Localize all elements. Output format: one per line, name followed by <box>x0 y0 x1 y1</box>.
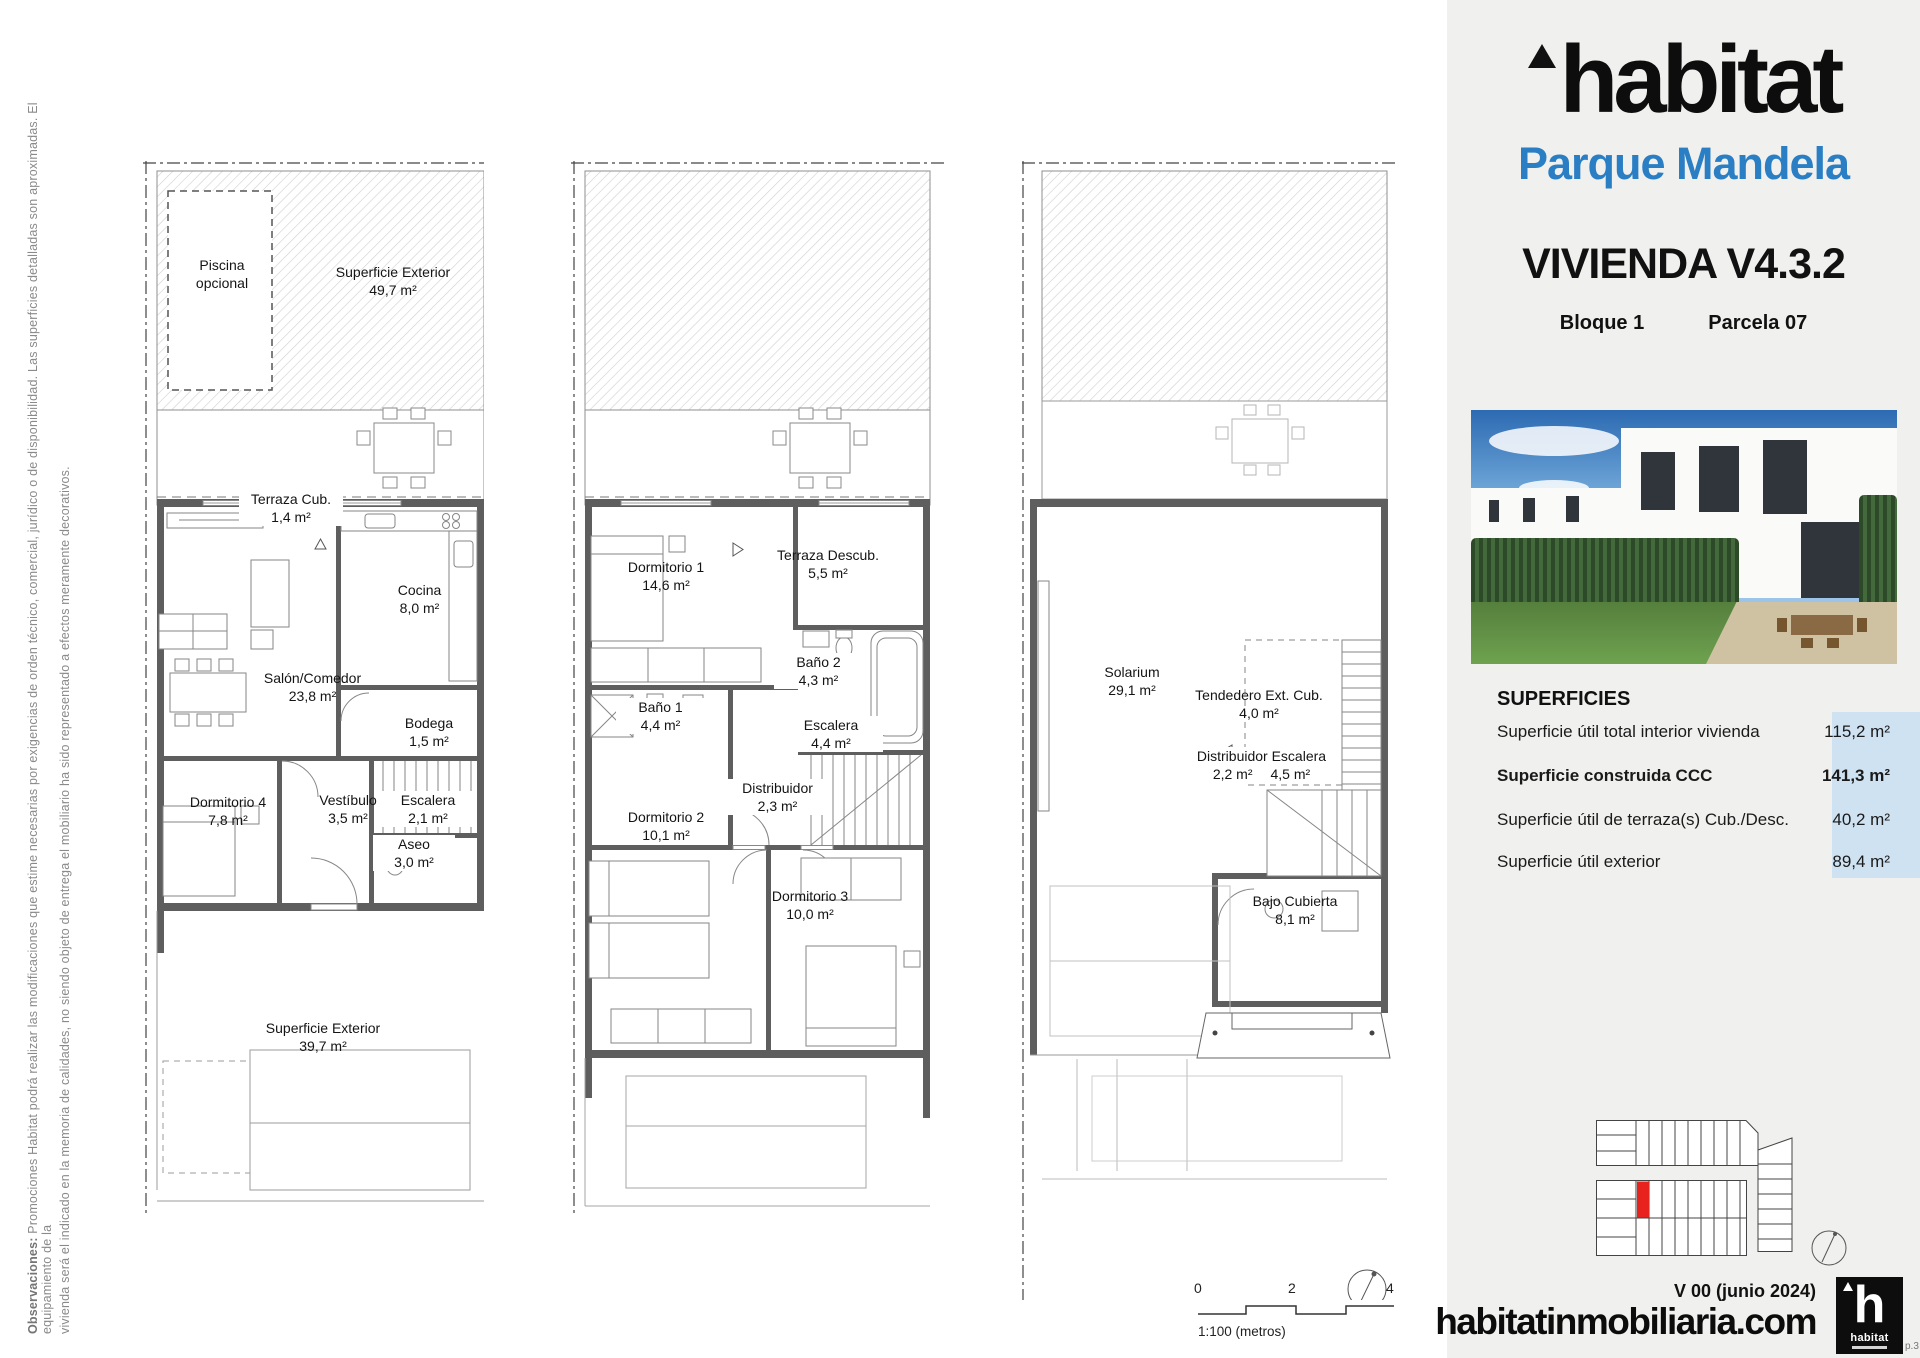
room-name: Terraza Descub. <box>763 546 893 564</box>
room-name: Bodega <box>385 714 473 732</box>
room-label-solarium: Solarium 29,1 m² <box>1077 663 1187 699</box>
room-name: Bajo Cubierta <box>1240 892 1350 910</box>
room-name: Dormitorio 2 <box>611 808 721 826</box>
superficie-label: Superficie útil exterior <box>1497 852 1660 872</box>
site-plan-minimap <box>1596 1120 1806 1260</box>
room-area: 8,1 m² <box>1240 910 1350 928</box>
room-label-escalera: Escalera 4,4 m² <box>779 716 883 752</box>
superficie-label: Superficie útil total interior vivienda <box>1497 722 1760 742</box>
disclaimer-text-1: Promociones Habitat podrá realizar las m… <box>26 102 54 1334</box>
room-label-dormitorio-4: Dormitorio 4 7,8 m² <box>168 793 288 829</box>
room-label-dormitorio-1: Dormitorio 1 14,6 m² <box>606 558 726 594</box>
room-area: 3,0 m² <box>375 853 453 871</box>
disclaimer-text-2: vivienda será el indicado en la memoria … <box>58 466 72 1334</box>
room-name: Superficie Exterior <box>313 263 473 281</box>
room-label-superficie-exterior-bottom: Superficie Exterior 39,7 m² <box>248 1019 398 1055</box>
scale-bar: 0 2 4 1:100 (metros) <box>1196 1280 1410 1350</box>
room-area: 23,8 m² <box>255 687 370 705</box>
room-label-salon-comedor: Salón/Comedor 23,8 m² <box>255 669 370 705</box>
room-label-bano-1: Baño 1 4,4 m² <box>616 698 705 734</box>
room-area: 5,5 m² <box>763 564 893 582</box>
room-area: 14,6 m² <box>606 576 726 594</box>
room-label-cocina: Cocina 8,0 m² <box>377 581 462 617</box>
room-name: Distribuidor Escalera <box>1184 747 1339 765</box>
superficies-row: Superficie útil exterior 89,4 m² <box>1497 852 1900 874</box>
room-area: 4,4 m² <box>781 734 881 752</box>
scale-tick-0: 0 <box>1194 1280 1202 1296</box>
superficies-row: Superficie útil de terraza(s) Cub./Desc.… <box>1497 810 1900 832</box>
room-area: 49,7 m² <box>313 281 473 299</box>
version-label: V 00 (junio 2024) <box>1674 1281 1816 1302</box>
room-label-bajo-cubierta: Bajo Cubierta 8,1 m² <box>1240 892 1350 928</box>
room-label-piscina: Piscina opcional <box>170 256 274 292</box>
photo-window <box>1641 452 1675 510</box>
habitat-logo: habitat <box>1447 34 1920 125</box>
photo-patio-chair <box>1827 638 1839 648</box>
room-name: Cocina <box>377 581 462 599</box>
room-label-bano-2: Baño 2 4,3 m² <box>774 653 863 689</box>
photo-window <box>1763 440 1807 514</box>
room-name: Terraza Cub. <box>241 490 341 508</box>
page-reference: p.3 <box>1905 1341 1919 1352</box>
logo-word: habitat <box>1836 1332 1903 1344</box>
scale-tick-4: 4 <box>1386 1280 1394 1296</box>
room-label-terraza-cub: Terraza Cub. 1,4 m² <box>239 490 343 526</box>
disclaimer-bold: Observaciones: <box>26 1237 40 1334</box>
unit-title: VIVIENDA V4.3.2 <box>1447 240 1920 289</box>
room-label-dormitorio-2: Dormitorio 2 10,1 m² <box>611 808 721 844</box>
superficie-value: 89,4 m² <box>1832 852 1890 872</box>
room-label-escalera: Escalera 2,1 m² <box>381 791 475 827</box>
photo-patio-chair <box>1777 618 1787 632</box>
disclaimer: Observaciones: Promociones Habitat podrá… <box>26 24 72 1334</box>
room-area: 10,1 m² <box>611 826 721 844</box>
photo-window <box>1566 496 1579 522</box>
floor-plan-ground: Piscina opcional Superficie Exterior 49,… <box>143 161 484 1217</box>
logo-underline <box>1852 1346 1887 1349</box>
scale-bar-drawing <box>1196 1298 1406 1320</box>
superficies-row: Superficie útil total interior vivienda … <box>1497 722 1900 744</box>
room-label-aseo: Aseo 3,0 m² <box>373 835 455 871</box>
superficie-value: 115,2 m² <box>1824 722 1890 742</box>
room-area: 1,4 m² <box>241 508 341 526</box>
photo-window <box>1699 446 1739 512</box>
room-label-terraza-descub: Terraza Descub. 5,5 m² <box>763 546 893 582</box>
habitat-footer-logo: h habitat <box>1836 1277 1903 1354</box>
room-name: Dormitorio 3 <box>754 887 866 905</box>
project-name: Parque Mandela <box>1447 138 1920 190</box>
room-area: 39,7 m² <box>248 1037 398 1055</box>
compass-icon <box>1807 1226 1851 1270</box>
room-name: Baño 1 <box>618 698 703 716</box>
room-area: 4,0 m² <box>1184 704 1334 722</box>
photo-patio-chair <box>1857 618 1867 632</box>
floor-plan-roof-drawing <box>1022 161 1397 1300</box>
brand-wordmark: habitat <box>1560 34 1840 125</box>
room-label-distribuidor: Distribuidor 2,3 m² <box>723 779 832 815</box>
habitat-triangle-icon <box>1528 44 1556 68</box>
room-area: 4,4 m² <box>618 716 703 734</box>
room-name: Piscina <box>170 256 274 274</box>
room-areas: 2,2 m² 4,5 m² <box>1184 765 1339 783</box>
highlighted-plot <box>1637 1182 1649 1218</box>
room-name: Superficie Exterior <box>248 1019 398 1037</box>
logo-letter: h <box>1836 1279 1903 1331</box>
website-link[interactable]: habitatinmobiliaria.com <box>1435 1301 1816 1343</box>
room-area: 1,5 m² <box>385 732 473 750</box>
photo-hedge <box>1471 538 1739 606</box>
room-area-2: 4,5 m² <box>1271 765 1311 783</box>
room-name: Aseo <box>375 835 453 853</box>
info-panel: habitat Parque Mandela VIVIENDA V4.3.2 B… <box>1447 0 1920 1358</box>
room-name: Escalera <box>383 791 473 809</box>
plan-sheet: Observaciones: Promociones Habitat podrá… <box>0 0 1920 1358</box>
room-name: Tendedero Ext. Cub. <box>1184 686 1334 704</box>
room-area: 8,0 m² <box>377 599 462 617</box>
superficie-label: Superficie construida CCC <box>1497 766 1712 786</box>
room-name: Dormitorio 1 <box>606 558 726 576</box>
disclaimer-line-1: Observaciones: Promociones Habitat podrá… <box>26 24 54 1334</box>
superficie-label: Superficie útil de terraza(s) Cub./Desc. <box>1497 810 1789 830</box>
floor-plan-first: Dormitorio 1 14,6 m² Terraza Descub. 5,5… <box>571 161 944 1217</box>
room-name-2: opcional <box>170 274 274 292</box>
photo-window <box>1489 500 1499 522</box>
superficies-heading: SUPERFICIES <box>1497 688 1630 711</box>
parcel-label: Parcela 07 <box>1708 312 1807 335</box>
room-label-distribuidor-escalera: Distribuidor Escalera 2,2 m² 4,5 m² <box>1182 747 1341 783</box>
room-area: 2,3 m² <box>725 797 830 815</box>
photo-hedge <box>1859 495 1897 605</box>
floor-plan-first-drawing <box>571 161 944 1217</box>
scale-tick-2: 2 <box>1288 1280 1296 1296</box>
superficie-value: 141,3 m² <box>1822 766 1890 786</box>
photo-patio-table <box>1791 615 1853 635</box>
room-name: Dormitorio 4 <box>168 793 288 811</box>
block-label: Bloque 1 <box>1560 312 1644 335</box>
room-label-dormitorio-3: Dormitorio 3 10,0 m² <box>754 887 866 923</box>
room-name: Baño 2 <box>776 653 861 671</box>
superficie-value: 40,2 m² <box>1832 810 1890 830</box>
room-area: 29,1 m² <box>1077 681 1187 699</box>
room-label-superficie-exterior-top: Superficie Exterior 49,7 m² <box>313 263 473 299</box>
room-area: 10,0 m² <box>754 905 866 923</box>
photo-cloud <box>1489 426 1619 456</box>
disclaimer-line-2: vivienda será el indicado en la memoria … <box>58 24 72 1334</box>
room-area: 7,8 m² <box>168 811 288 829</box>
floor-plan-roof: Solarium 29,1 m² Tendedero Ext. Cub. 4,0… <box>1022 161 1397 1300</box>
photo-window <box>1523 498 1535 522</box>
block-parcel-row: Bloque 1 Parcela 07 <box>1447 312 1920 335</box>
superficies-table: Superficie útil total interior vivienda … <box>1497 712 1900 882</box>
room-name: Solarium <box>1077 663 1187 681</box>
photo-patio-chair <box>1801 638 1813 648</box>
development-photo <box>1471 410 1897 664</box>
room-name: Escalera <box>781 716 881 734</box>
room-name: Distribuidor <box>725 779 830 797</box>
room-label-tendedero: Tendedero Ext. Cub. 4,0 m² <box>1184 686 1334 722</box>
room-label-bodega: Bodega 1,5 m² <box>383 714 475 750</box>
room-area: 4,3 m² <box>776 671 861 689</box>
scale-caption: 1:100 (metros) <box>1198 1324 1286 1339</box>
superficies-row: Superficie construida CCC 141,3 m² <box>1497 766 1900 788</box>
room-name: Salón/Comedor <box>255 669 370 687</box>
room-area: 2,1 m² <box>383 809 473 827</box>
room-area: 2,2 m² <box>1213 765 1253 783</box>
